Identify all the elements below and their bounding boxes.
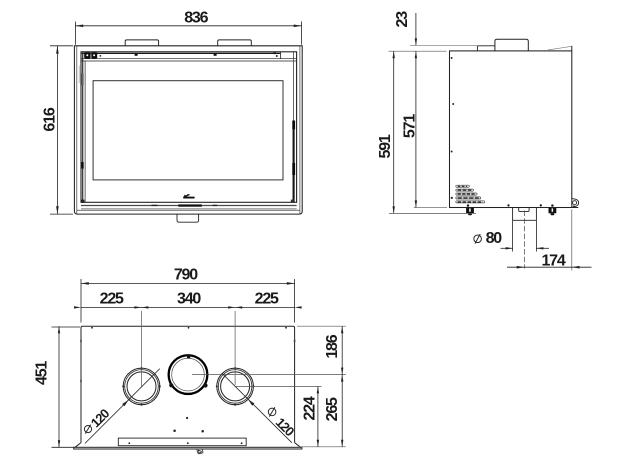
svg-text:451: 451 xyxy=(33,361,50,385)
svg-text:340: 340 xyxy=(177,290,201,307)
svg-text:174: 174 xyxy=(541,252,565,269)
svg-text:616: 616 xyxy=(42,107,59,131)
svg-text:225: 225 xyxy=(100,290,124,307)
svg-text:23: 23 xyxy=(394,11,411,28)
svg-text:836: 836 xyxy=(184,9,208,26)
svg-text:225: 225 xyxy=(255,290,279,307)
svg-text:224: 224 xyxy=(302,396,319,420)
svg-text:186: 186 xyxy=(324,334,341,358)
svg-text:80: 80 xyxy=(486,230,503,247)
svg-text:265: 265 xyxy=(324,397,341,421)
svg-text:571: 571 xyxy=(401,114,418,138)
svg-text:790: 790 xyxy=(174,267,198,284)
svg-text:591: 591 xyxy=(377,134,394,158)
